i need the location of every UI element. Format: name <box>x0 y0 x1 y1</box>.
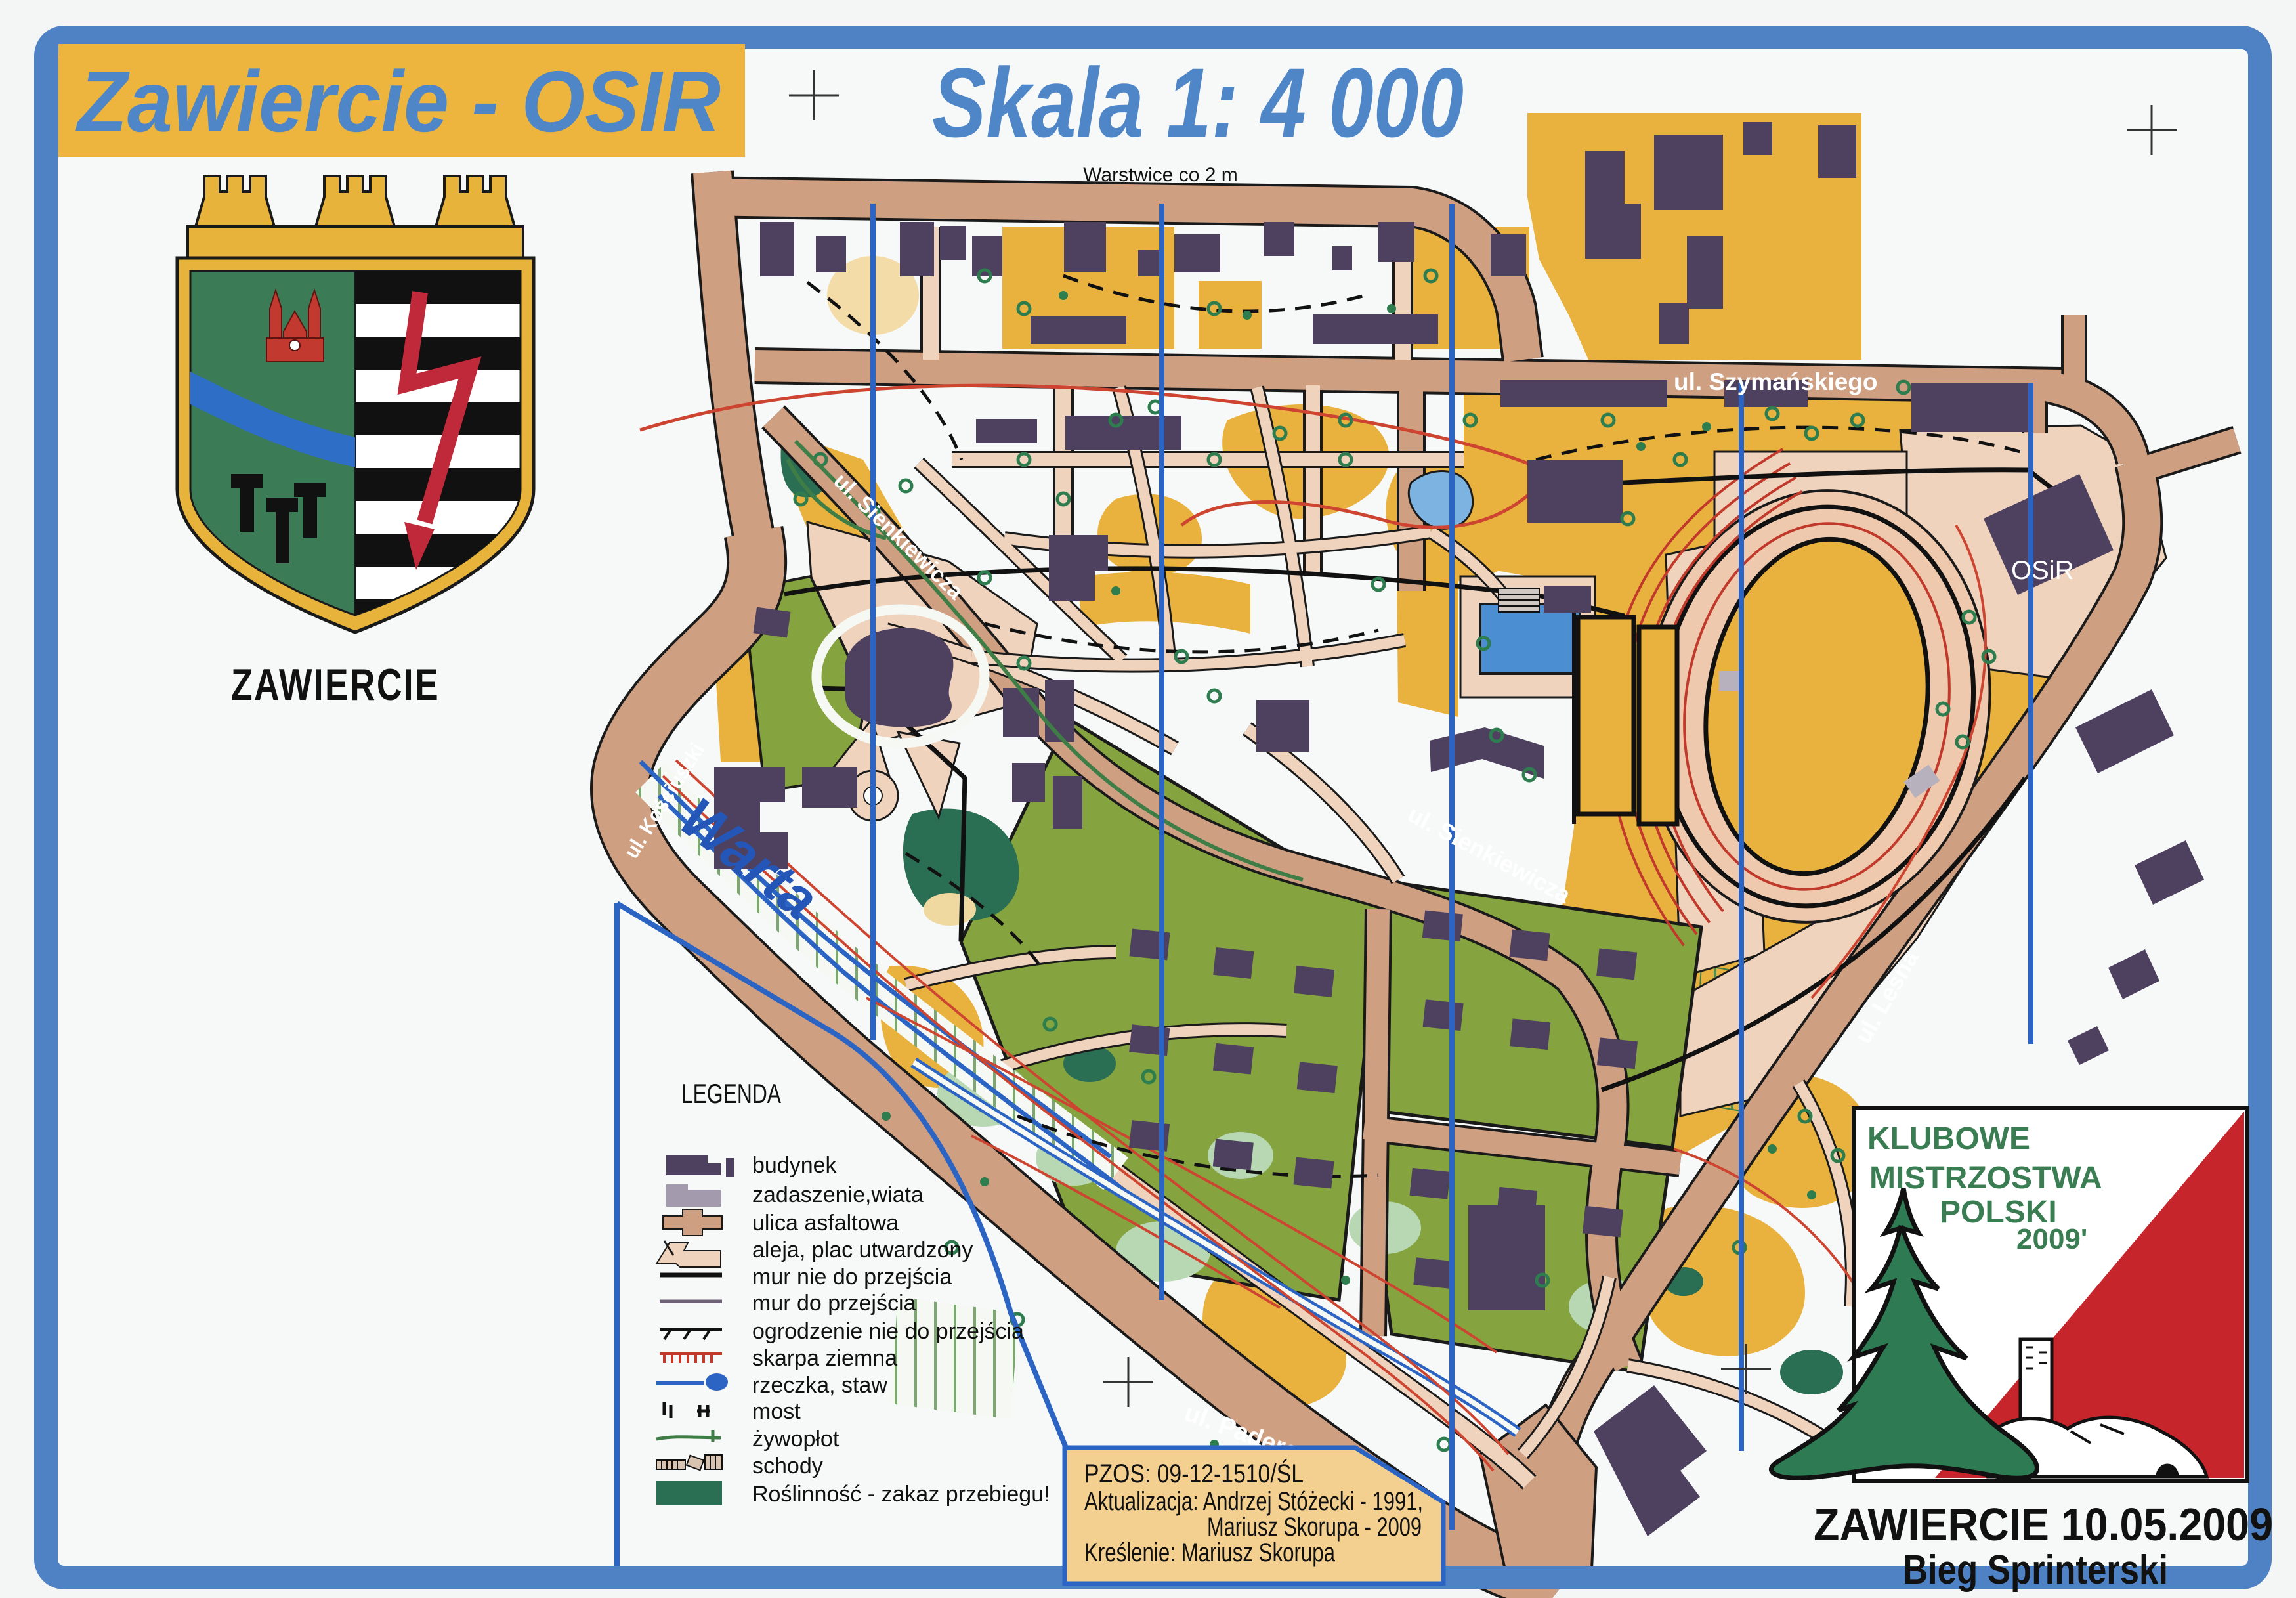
svg-text:żywopłot: żywopłot <box>752 1427 840 1452</box>
svg-text:rzeczka, staw: rzeczka, staw <box>752 1373 887 1398</box>
svg-text:schody: schody <box>752 1454 823 1479</box>
svg-text:Warstwice co 2 m: Warstwice co 2 m <box>1083 164 1238 186</box>
svg-text:aleja, plac utwardzony: aleja, plac utwardzony <box>752 1238 973 1263</box>
svg-text:2009': 2009' <box>2016 1223 2087 1255</box>
svg-text:ZAWIERCIE: ZAWIERCIE <box>231 660 440 710</box>
svg-text:PZOS: 09-12-1510/ŚL: PZOS: 09-12-1510/ŚL <box>1084 1458 1304 1488</box>
svg-text:ul. Szymańskiego: ul. Szymańskiego <box>1674 368 1878 395</box>
svg-text:ulica asfaltowa: ulica asfaltowa <box>752 1211 899 1236</box>
svg-text:Aktualizacja: Andrzej Stóżecki: Aktualizacja: Andrzej Stóżecki - 1991, <box>1084 1487 1423 1516</box>
svg-text:Mariusz Skorupa - 2009: Mariusz Skorupa - 2009 <box>1207 1513 1422 1542</box>
svg-text:mur nie do przejścia: mur nie do przejścia <box>752 1264 952 1289</box>
svg-text:Roślinność - zakaz przebiegu!: Roślinność - zakaz przebiegu! <box>752 1482 1050 1507</box>
svg-text:LEGENDA: LEGENDA <box>681 1078 781 1109</box>
svg-text:skarpa ziemna: skarpa ziemna <box>752 1346 897 1371</box>
svg-text:Bieg Sprinterski: Bieg Sprinterski <box>1903 1547 2168 1593</box>
svg-text:MISTRZOSTWA: MISTRZOSTWA <box>1869 1161 2102 1196</box>
svg-text:OSiR: OSiR <box>2011 556 2074 585</box>
svg-text:ZAWIERCIE 10.05.2009: ZAWIERCIE 10.05.2009 <box>1814 1499 2273 1550</box>
svg-text:zadaszenie,wiata: zadaszenie,wiata <box>752 1182 924 1207</box>
svg-text:ogrodzenie nie do przejścia: ogrodzenie nie do przejścia <box>752 1319 1024 1344</box>
svg-text:budynek: budynek <box>752 1153 838 1178</box>
svg-text:mur do przejścia: mur do przejścia <box>752 1291 916 1316</box>
svg-text:Skala 1: 4 000: Skala 1: 4 000 <box>932 47 1464 158</box>
svg-text:most: most <box>752 1399 801 1424</box>
svg-text:KLUBOWE: KLUBOWE <box>1867 1121 2030 1156</box>
svg-text:Kreślenie: Mariusz Skorupa: Kreślenie: Mariusz Skorupa <box>1084 1538 1336 1567</box>
svg-text:Zawiercie - OSIR: Zawiercie - OSIR <box>75 53 721 150</box>
